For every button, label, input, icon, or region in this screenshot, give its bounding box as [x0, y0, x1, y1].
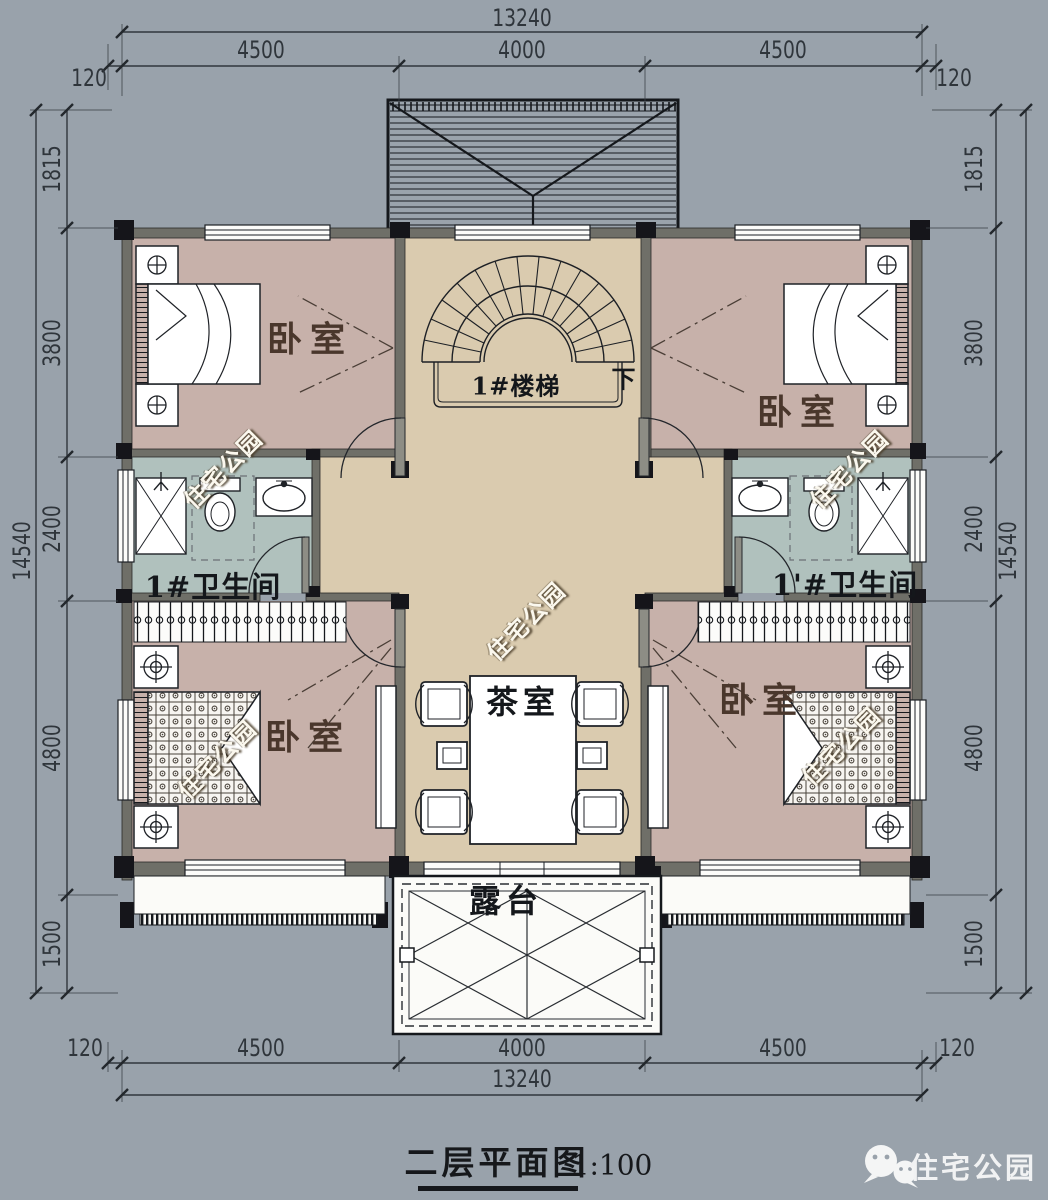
dim-left-seg-2: 3800 — [38, 319, 66, 367]
brand-name: 住宅公园 — [909, 1145, 1037, 1187]
dim-right-seg-3: 2400 — [960, 505, 988, 553]
shower — [858, 472, 908, 554]
dim-top-offset-right: 120 — [936, 64, 972, 92]
cabinet — [376, 686, 396, 828]
armchair — [572, 790, 629, 834]
dim-right-seg-2: 3800 — [960, 319, 988, 367]
dim-bottom-offset-left: 120 — [67, 1034, 103, 1062]
dim-right-seg-5: 1500 — [960, 920, 988, 968]
hall-floor — [320, 449, 724, 601]
label-bathroom-left: 1#卫生间 — [145, 564, 281, 606]
dim-left-seg-4: 4800 — [38, 724, 66, 772]
balcony-left-railing — [140, 914, 378, 925]
dim-right-seg-4: 4800 — [960, 724, 988, 772]
wardrobe-left — [134, 602, 346, 642]
dim-bottom-seg-3: 4500 — [759, 1034, 807, 1062]
armchair — [572, 682, 629, 726]
dim-right-seg-1: 1815 — [960, 145, 988, 193]
balcony-left — [134, 876, 385, 925]
label-terrace: 露台 — [469, 876, 543, 922]
dim-top-seg-2: 4000 — [498, 36, 546, 64]
side-table — [577, 742, 607, 769]
dim-left-overall: 14540 — [8, 521, 36, 581]
stair-hall-floor — [405, 238, 641, 457]
label-stairs: 1#楼梯 — [472, 367, 561, 402]
label-bedroom-top-left: 卧室 — [267, 312, 353, 363]
dim-right-overall: 14540 — [994, 521, 1022, 581]
dim-left-seg-3: 2400 — [38, 505, 66, 553]
dim-bottom-seg-2: 4000 — [498, 1034, 546, 1062]
dim-top-offset-left: 120 — [71, 64, 107, 92]
floor-plan-page: 13240 4500 4000 4500 120 120 120 4500 40… — [0, 0, 1048, 1200]
cabinet — [648, 686, 668, 828]
title-underline — [418, 1186, 578, 1191]
dim-bottom-seg-1: 4500 — [237, 1034, 285, 1062]
sink — [256, 478, 312, 516]
label-bedroom-bottom-right: 卧室 — [719, 673, 805, 724]
dim-top-seg-3: 4500 — [759, 36, 807, 64]
label-bedroom-bottom-left: 卧室 — [265, 710, 351, 761]
label-stairs-down: 下 — [612, 360, 637, 395]
label-tea-room: 茶室 — [486, 677, 560, 723]
dim-top-overall: 13240 — [492, 4, 552, 32]
roof-plan — [388, 100, 678, 229]
dim-bottom-offset-right: 120 — [939, 1034, 975, 1062]
balcony-right — [659, 876, 910, 925]
shower — [136, 472, 186, 554]
dim-left-seg-5: 1500 — [38, 920, 66, 968]
dim-left-seg-1: 1815 — [38, 145, 66, 193]
drawing-title: 二层平面图 — [405, 1136, 590, 1184]
balcony-right-railing — [666, 914, 904, 925]
wardrobe-right — [698, 602, 910, 642]
dim-top-seg-1: 4500 — [237, 36, 285, 64]
label-bedroom-top-right: 卧室 — [757, 385, 843, 436]
armchair — [416, 790, 473, 834]
label-bathroom-right: 1'#卫生间 — [772, 562, 918, 604]
sink — [732, 478, 788, 516]
drawing-scale: 1:100 — [572, 1149, 653, 1182]
dim-bottom-overall: 13240 — [492, 1065, 552, 1093]
side-table — [437, 742, 467, 769]
armchair — [416, 682, 473, 726]
